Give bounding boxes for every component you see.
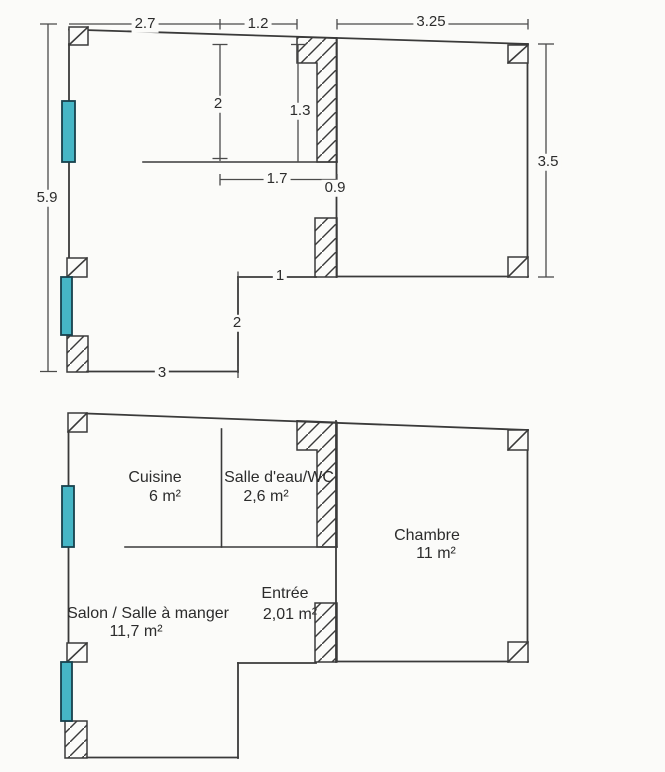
hatched-wall-bath-upper bbox=[297, 37, 337, 162]
dim-left-height: 5.9 bbox=[34, 190, 61, 207]
dim-bath-door: 1.3 bbox=[287, 103, 314, 120]
window-marker bbox=[62, 101, 75, 162]
dim-entry-notch: 1 bbox=[273, 268, 287, 285]
floor-plan-page: 2.7 1.2 3.25 5.9 3.5 2 1.3 1.7 0.9 1 2 3… bbox=[0, 0, 665, 772]
upper-plan bbox=[40, 19, 554, 378]
room-area-cuisine: 6 m² bbox=[149, 488, 181, 506]
dim-bedroom-door: 0.9 bbox=[322, 180, 349, 197]
room-area-chambre: 11 m² bbox=[416, 545, 456, 563]
dimension-lines-upper bbox=[40, 19, 554, 378]
hatched-wall-entry-lower bbox=[315, 603, 337, 662]
hatched-wall-entry-upper bbox=[315, 218, 337, 277]
room-area-salle-eau: 2,6 m² bbox=[243, 488, 288, 506]
window-marker bbox=[62, 486, 74, 547]
room-name-salon: Salon / Salle à manger bbox=[67, 605, 229, 623]
dim-top-right: 3.25 bbox=[413, 14, 448, 31]
room-name-salle-eau: Salle d'eau/WC bbox=[224, 469, 334, 487]
dim-top-left: 2.7 bbox=[132, 16, 159, 33]
dim-bottom-width: 3 bbox=[155, 365, 169, 382]
room-area-salon: 11,7 m² bbox=[109, 623, 162, 641]
room-name-entree: Entrée bbox=[261, 585, 308, 603]
dim-kitchen-depth: 2 bbox=[211, 96, 225, 113]
floor-plan-drawing bbox=[0, 0, 665, 772]
hatched-wall-bottomleft-upper bbox=[67, 336, 88, 372]
window-marker bbox=[61, 662, 72, 721]
room-name-chambre: Chambre bbox=[394, 527, 460, 545]
room-area-entree: 2,01 m² bbox=[263, 606, 317, 624]
dim-top-mid: 1.2 bbox=[245, 16, 272, 33]
dim-kitchen-width: 1.7 bbox=[264, 171, 291, 188]
hatched-wall-bottomleft-lower bbox=[65, 721, 87, 758]
dim-salon-notch: 2 bbox=[230, 315, 244, 332]
dim-right-height: 3.5 bbox=[535, 154, 562, 171]
room-name-cuisine: Cuisine bbox=[128, 469, 181, 487]
window-marker bbox=[61, 277, 72, 335]
